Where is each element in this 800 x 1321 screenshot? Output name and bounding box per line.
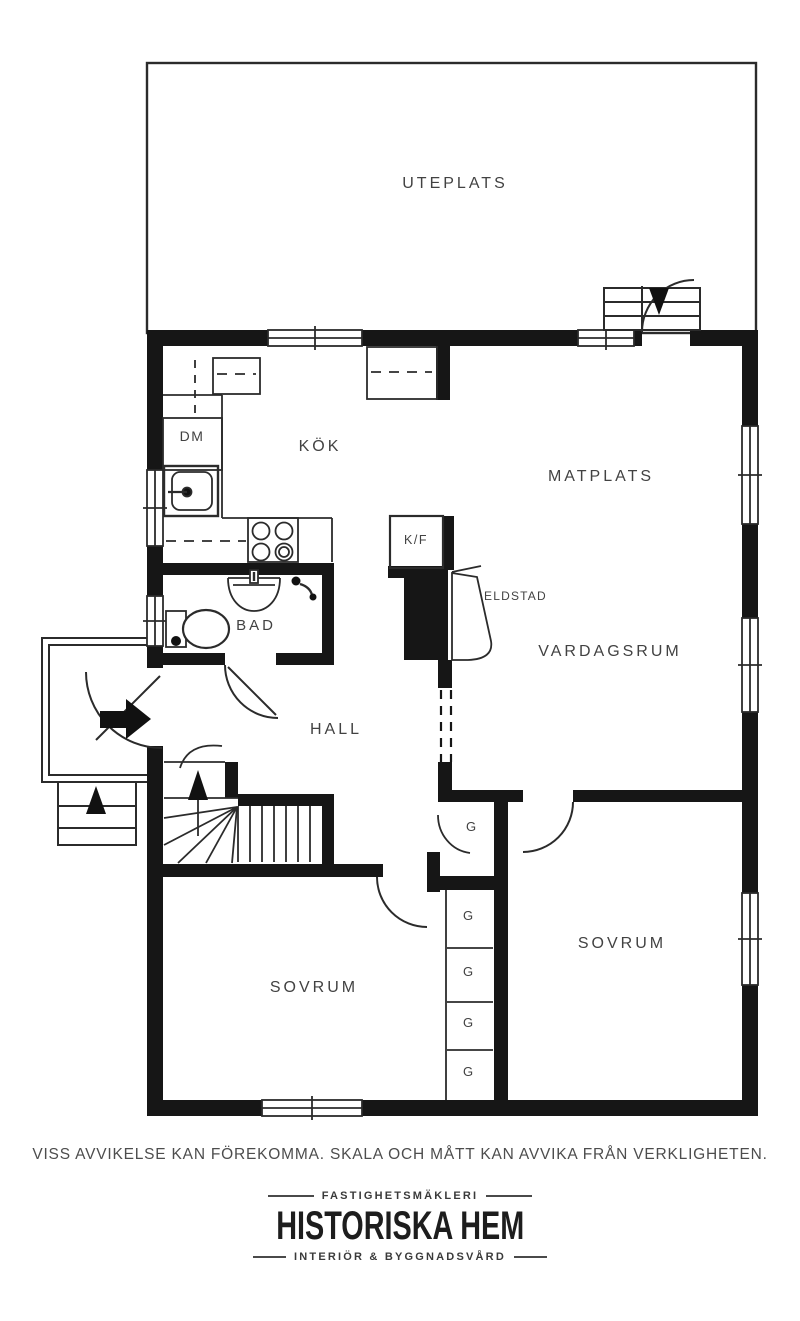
window-matplats-right	[738, 426, 762, 524]
footer: VISS AVVIKELSE KAN FÖREKOMMA. SKALA OCH …	[0, 1146, 800, 1263]
stairs-arrow-icon	[188, 770, 208, 800]
logo-rule-left	[268, 1195, 314, 1197]
chimney-block	[404, 578, 448, 660]
room-label-bad: BAD	[236, 617, 276, 634]
label-fridge-freezer: K/F	[404, 533, 428, 547]
bath-sink	[228, 570, 280, 611]
entrance-door	[86, 672, 162, 748]
window-sovrum-bottom	[262, 1096, 362, 1120]
room-label-uteplats: UTEPLATS	[402, 175, 508, 193]
logo-bottom-row: INTERIÖR & BYGGNADSVÅRD	[253, 1251, 547, 1263]
label-closet-2: G	[463, 908, 473, 923]
room-label-sovrum-right: SOVRUM	[578, 935, 666, 953]
window-kitchen-top	[268, 326, 362, 350]
logo-bottom-text: INTERIÖR & BYGGNADSVÅRD	[294, 1251, 506, 1263]
disclaimer-text: VISS AVVIKELSE KAN FÖREKOMMA. SKALA OCH …	[0, 1146, 800, 1164]
window-vardagsrum-right	[738, 618, 762, 712]
logo-top-text: FASTIGHETSMÄKLERI	[322, 1190, 479, 1202]
label-closet-3: G	[463, 964, 473, 979]
logo-rule-right-2	[514, 1256, 547, 1258]
label-closet-5: G	[463, 1064, 473, 1079]
windows	[143, 326, 762, 1120]
bathroom-door	[225, 665, 278, 718]
logo-top-row: FASTIGHETSMÄKLERI	[268, 1190, 533, 1202]
sovrum-right-door	[523, 802, 573, 852]
label-fireplace: ELDSTAD	[484, 589, 547, 603]
logo-rule-left-2	[253, 1256, 286, 1258]
sovrum-left-door	[377, 877, 427, 927]
closets	[438, 815, 493, 1100]
label-closet-4: G	[463, 1015, 473, 1030]
fireplace-hearth	[452, 566, 491, 660]
room-label-sovrum-left: SOVRUM	[270, 979, 358, 997]
floorplan-page: UTEPLATS KÖK MATPLATS VARDAGSRUM HALL BA…	[0, 0, 800, 1321]
shower-mixer-icon	[292, 577, 317, 601]
kitchen-fixtures	[163, 347, 443, 568]
bathroom-fixtures	[166, 570, 317, 648]
logo-name-text: HISTORISKA HEM	[276, 1204, 524, 1248]
room-label-matplats: MATPLATS	[548, 468, 654, 486]
room-label-hall: HALL	[310, 721, 362, 739]
exterior-walls	[147, 330, 758, 1116]
agency-logo: FASTIGHETSMÄKLERI HISTORISKA HEM INTERIÖ…	[0, 1190, 800, 1263]
patio-door	[604, 280, 700, 332]
floorplan: UTEPLATS KÖK MATPLATS VARDAGSRUM HALL BA…	[0, 0, 800, 1321]
toilet	[166, 610, 229, 648]
entrance-arrow-icon	[100, 699, 151, 739]
logo-rule-right	[486, 1195, 532, 1197]
opening-dashed	[441, 690, 451, 762]
kitchen-sink	[164, 466, 218, 516]
room-label-vardagsrum: VARDAGSRUM	[538, 643, 682, 661]
interior-walls	[147, 346, 742, 1100]
label-closet-1: G	[466, 819, 476, 834]
dishwasher	[163, 418, 222, 470]
label-dishwasher: DM	[180, 428, 205, 444]
window-sovrum-right	[738, 893, 762, 985]
room-label-kok: KÖK	[299, 438, 342, 456]
stove	[248, 518, 298, 562]
